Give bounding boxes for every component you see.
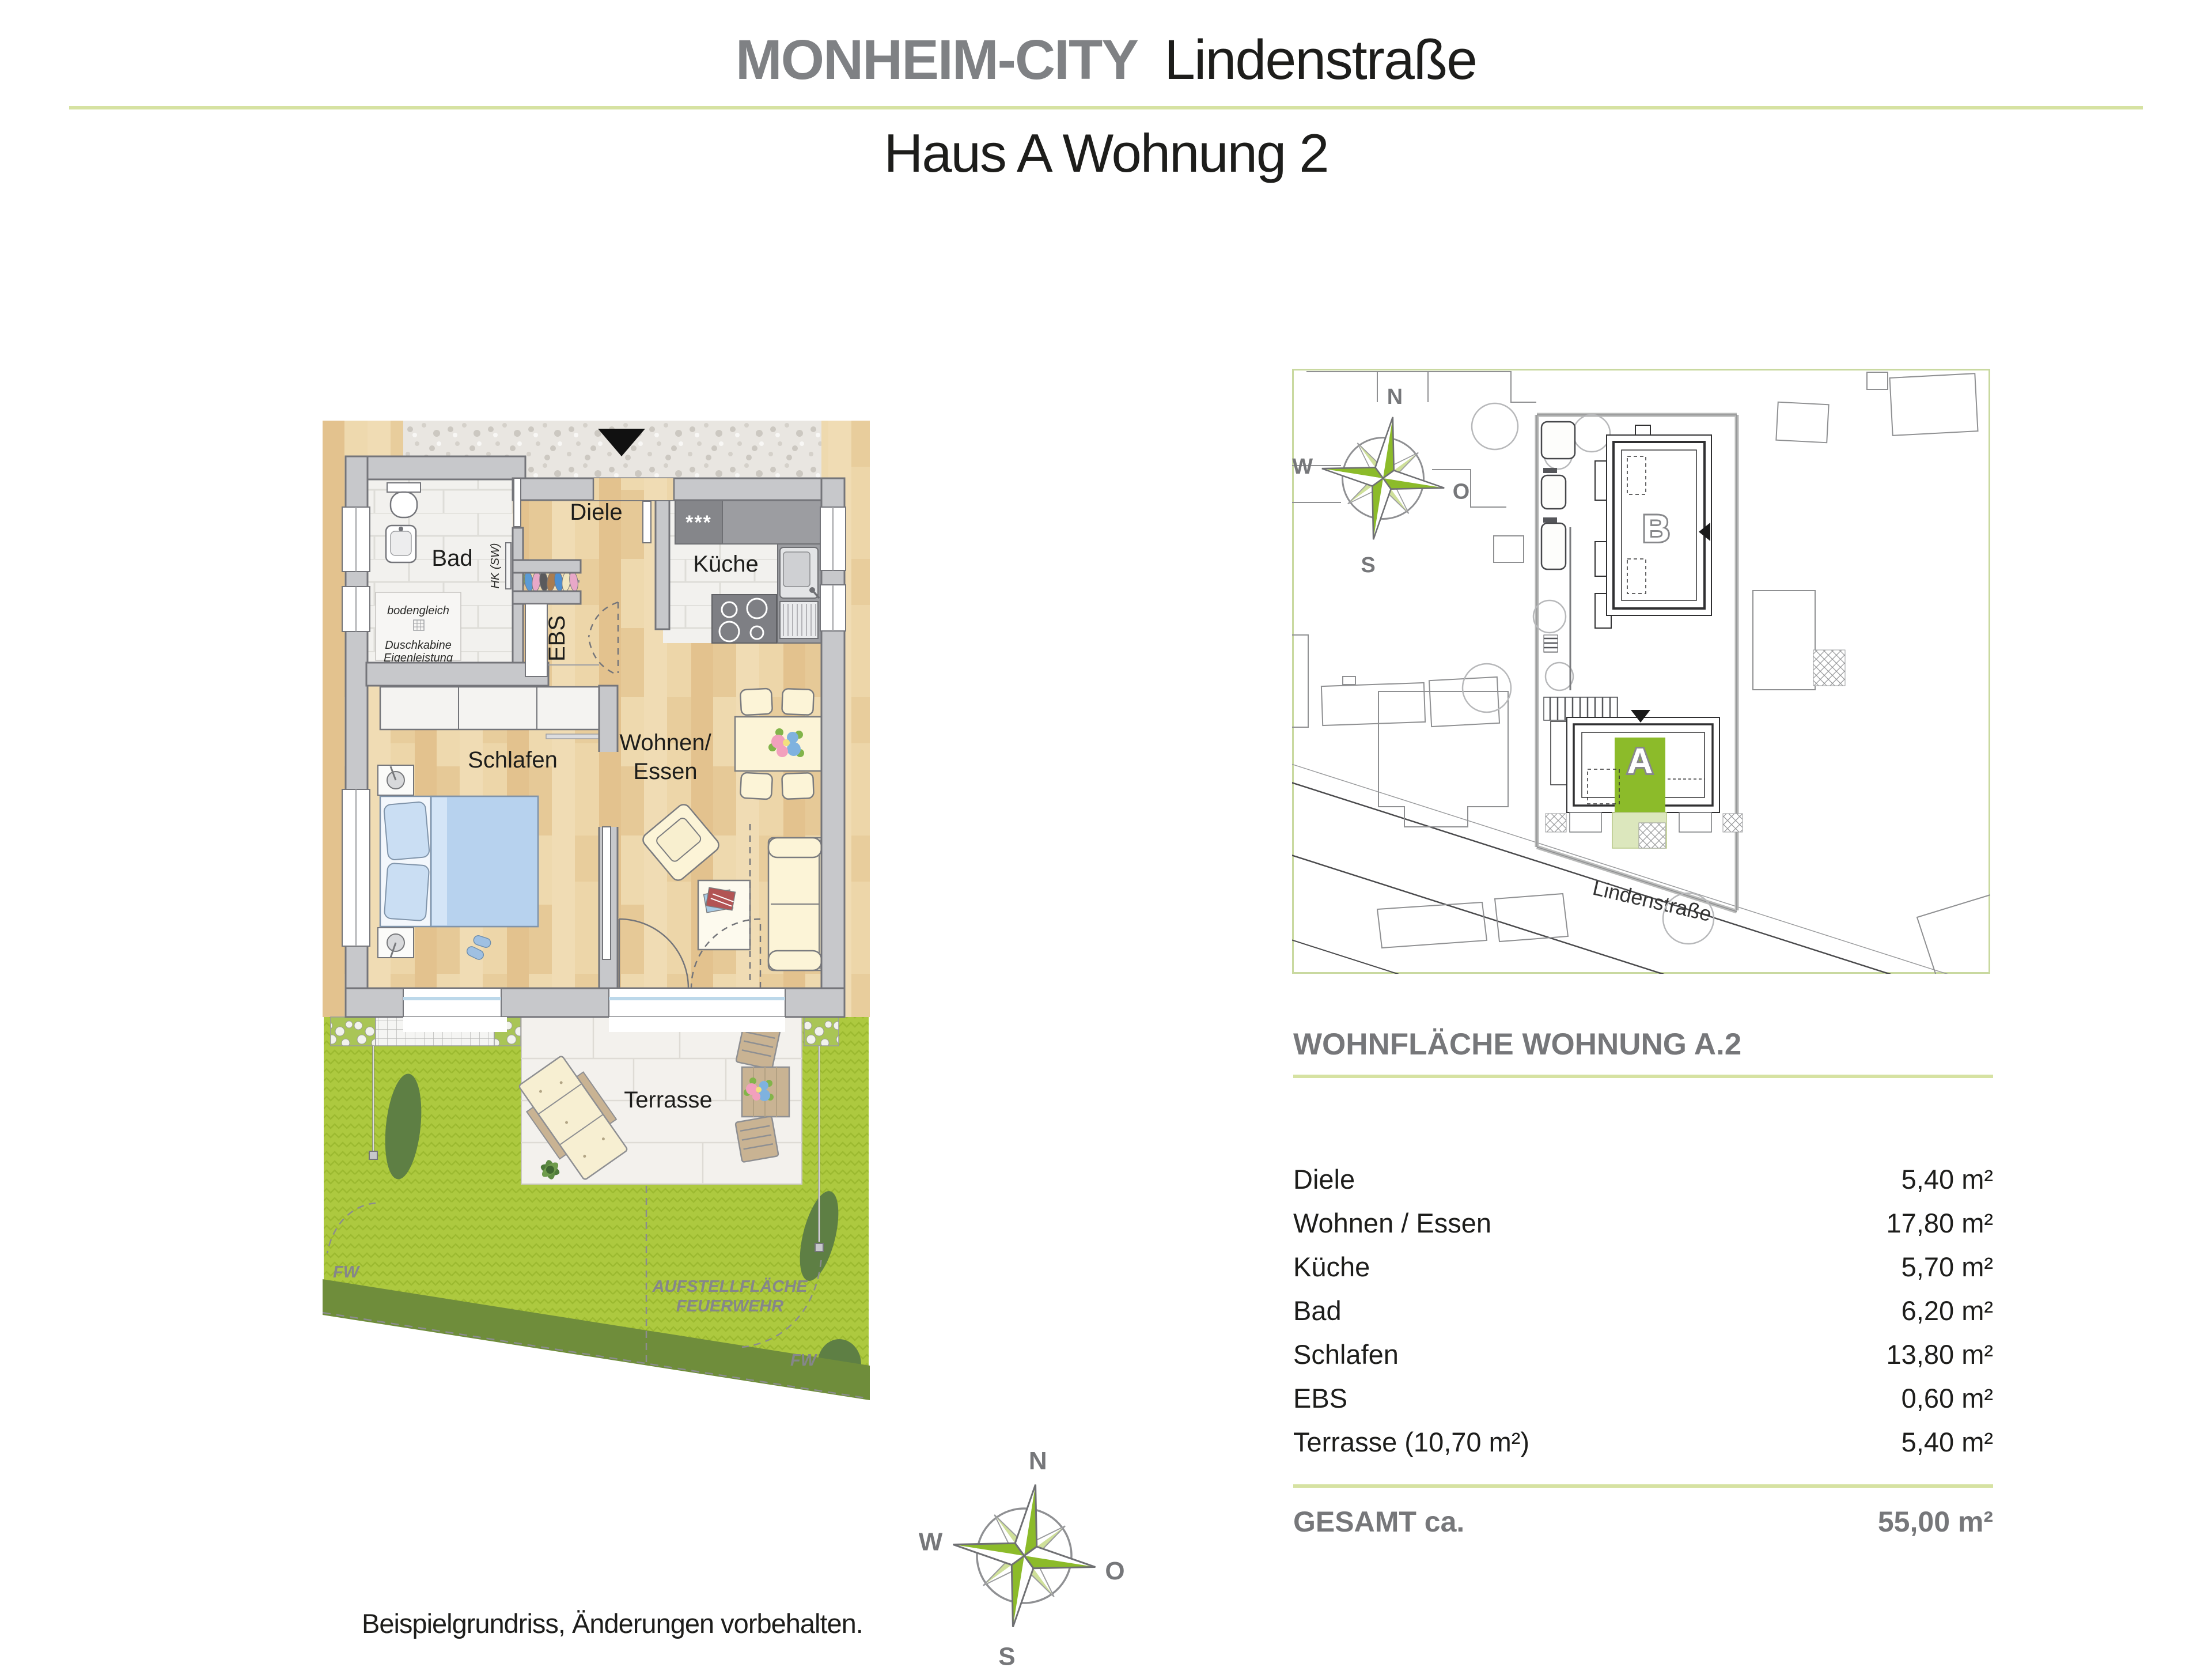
building-a-label: A	[1627, 742, 1653, 781]
compass-o-label: O	[1453, 479, 1469, 504]
building-b: B	[1595, 425, 1711, 628]
drainer-icon	[780, 602, 818, 638]
footer-disclaimer: Beispielgrundriss, Änderungen vorbehalte…	[362, 1608, 863, 1639]
table-row: Diele5,40 m²	[1293, 1163, 1993, 1195]
fw-right-label: FW	[790, 1351, 818, 1370]
room-label-diele: Diele	[570, 500, 622, 525]
table-row: Schlafen13,80 m²	[1293, 1339, 1993, 1370]
room-label-kueche: Küche	[693, 551, 758, 577]
wardrobe	[380, 687, 614, 729]
table-row: Terrasse (10,70 m²)5,40 m²	[1293, 1426, 1993, 1458]
page-subtitle: Haus A Wohnung 2	[0, 122, 2212, 184]
toilet-icon	[391, 492, 417, 517]
coffee-table	[698, 880, 750, 950]
radiator-icon	[506, 543, 511, 589]
room-label-bad: Bad	[431, 546, 472, 571]
compass-w-label: W	[919, 1528, 943, 1556]
entrance-door-leaf	[643, 501, 651, 543]
feuerwehr-label-1: AUFSTELLFLÄCHE	[652, 1277, 808, 1296]
garden: FW FW AUFSTELLFLÄCHE FEUERWEHR Terrasse	[323, 1017, 870, 1400]
pillow	[384, 802, 430, 860]
compass-rose-bottom: N O S W	[910, 1441, 1141, 1671]
table-row: Wohnen / Essen17,80 m²	[1293, 1207, 1993, 1239]
area-table-rows: Diele5,40 m² Wohnen / Essen17,80 m² Küch…	[1293, 1163, 1993, 1458]
room-label-schlafen: Schlafen	[468, 747, 558, 773]
table-row: Küche5,70 m²	[1293, 1251, 1993, 1283]
page-title: MONHEIM-CITYLindenstraße	[0, 28, 2212, 92]
brand-title: MONHEIM-CITY	[736, 28, 1138, 91]
compass-s-label: S	[998, 1643, 1015, 1671]
site-plan: Lindenstraße	[1292, 369, 1990, 974]
total-label: GESAMT ca.	[1293, 1505, 1464, 1538]
compass-n-label: N	[1029, 1447, 1047, 1475]
table-total-divider	[1293, 1484, 1993, 1488]
table-row: Bad6,20 m²	[1293, 1295, 1993, 1326]
pillow	[384, 863, 430, 921]
duschkabine-note-1: Duschkabine	[385, 639, 452, 652]
header-divider	[69, 106, 2143, 109]
stove-icon	[712, 595, 777, 643]
room-label-wohnen-2: Essen	[633, 759, 697, 784]
feuerwehr-label-2: FEUERWEHR	[676, 1297, 783, 1315]
compass-w-label: W	[1292, 455, 1313, 479]
compass-o-label: O	[1105, 1557, 1124, 1585]
table-total-row: GESAMT ca. 55,00 m²	[1293, 1505, 1993, 1538]
bodengleich-note: bodengleich	[387, 604, 449, 617]
room-label-terrasse: Terrasse	[624, 1087, 712, 1113]
sliding-door-panel	[603, 827, 611, 959]
double-bed	[380, 796, 538, 927]
compass-n-label: N	[1387, 385, 1403, 409]
area-table: WOHNFLÄCHE WOHNUNG A.2 Diele5,40 m² Wohn…	[1293, 1027, 1993, 1538]
compass-s-label: S	[1361, 553, 1376, 577]
area-table-title: WOHNFLÄCHE WOHNUNG A.2	[1293, 1027, 1993, 1062]
project-title: Lindenstraße	[1164, 28, 1476, 91]
building-b-label: B	[1642, 507, 1670, 550]
bath-sliding-door	[514, 478, 521, 527]
table-row: EBS0,60 m²	[1293, 1382, 1993, 1414]
table-divider	[1293, 1075, 1993, 1078]
fw-left-label: FW	[333, 1263, 361, 1281]
room-label-ebs: EBS	[544, 615, 570, 661]
radiator-label: HK (SW)	[489, 543, 502, 589]
total-value: 55,00 m²	[1878, 1505, 1993, 1538]
room-label-wohnen-1: Wohnen/	[619, 730, 711, 755]
fridge-stars: ***	[685, 512, 712, 534]
floor-plan: FW FW AUFSTELLFLÄCHE FEUERWEHR Terrasse …	[323, 421, 870, 1400]
magazine-icon	[706, 887, 736, 910]
